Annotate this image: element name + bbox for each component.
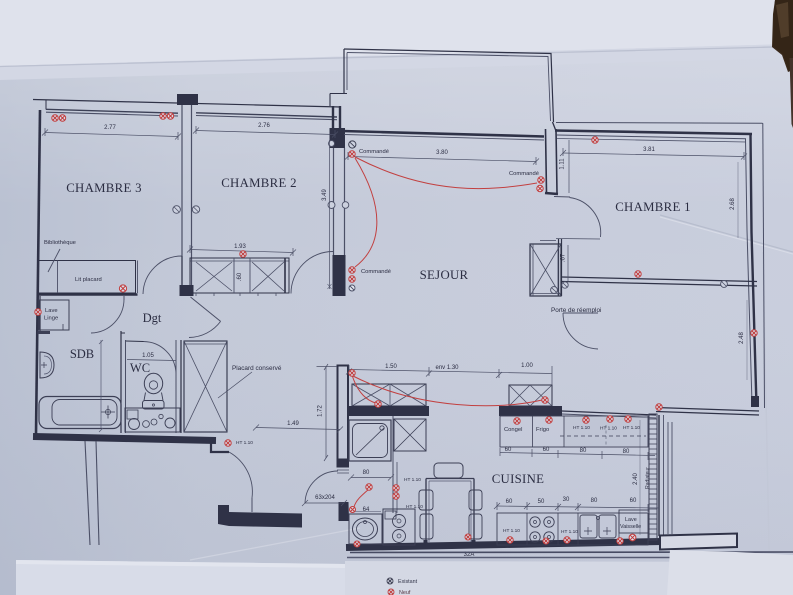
svg-text:HT 1.10: HT 1.10 (623, 425, 640, 431)
svg-text:Commandé: Commandé (509, 171, 539, 177)
svg-text:1.50: 1.50 (385, 364, 397, 370)
svg-text:1.93: 1.93 (234, 244, 246, 250)
svg-text:HT 1.10: HT 1.10 (236, 440, 253, 446)
svg-text:Lave: Lave (45, 308, 58, 314)
svg-text:Dgt: Dgt (143, 311, 162, 325)
svg-text:3.80: 3.80 (436, 150, 448, 156)
svg-text:HT 1.10: HT 1.10 (503, 528, 520, 534)
svg-text:80: 80 (591, 498, 598, 504)
svg-text:60: 60 (543, 447, 550, 453)
svg-text:1.05: 1.05 (142, 353, 154, 359)
svg-text:HT 1.10: HT 1.10 (573, 425, 590, 431)
svg-text:Lave: Lave (625, 517, 637, 523)
svg-text:SDB: SDB (70, 347, 94, 361)
svg-text:CUISINE: CUISINE (492, 472, 545, 486)
svg-text:WC: WC (130, 361, 150, 375)
svg-text:env 1.30: env 1.30 (435, 365, 459, 371)
svg-text:50: 50 (538, 499, 545, 505)
svg-text:3.49: 3.49 (322, 189, 328, 201)
svg-text:Neuf: Neuf (399, 590, 411, 595)
svg-text:60: 60 (505, 447, 512, 453)
svg-text:30: 30 (563, 497, 570, 503)
svg-text:.67: .67 (561, 253, 567, 262)
svg-text:HT 1.10: HT 1.10 (406, 504, 423, 510)
svg-text:Congel: Congel (504, 427, 522, 433)
svg-text:HT 1.10: HT 1.10 (404, 477, 421, 483)
svg-text:Placard conservé: Placard conservé (232, 365, 282, 372)
svg-text:HT 1.10: HT 1.10 (561, 529, 578, 535)
svg-text:Frigo: Frigo (536, 427, 549, 433)
svg-text:Linge: Linge (44, 316, 58, 322)
svg-text:Lit placard: Lit placard (75, 277, 102, 283)
svg-text:80: 80 (580, 448, 587, 454)
svg-text:2.68: 2.68 (730, 198, 736, 210)
svg-text:64: 64 (363, 507, 370, 513)
svg-text:Commandé: Commandé (359, 149, 389, 155)
svg-text:Existant: Existant (398, 579, 418, 585)
svg-text:CHAMBRE 1: CHAMBRE 1 (615, 200, 691, 214)
svg-text:2.48: 2.48 (739, 332, 745, 344)
svg-text:80: 80 (623, 449, 630, 455)
svg-text:2.77: 2.77 (104, 125, 116, 131)
svg-text:60: 60 (506, 499, 513, 505)
svg-text:2.76: 2.76 (258, 123, 270, 129)
svg-text:2.40: 2.40 (633, 473, 639, 485)
svg-text:Porte de réemploi: Porte de réemploi (551, 307, 601, 314)
svg-text:3.81: 3.81 (643, 147, 655, 153)
svg-text:1.72: 1.72 (318, 405, 324, 417)
svg-text:80: 80 (363, 470, 370, 476)
svg-text:CHAMBRE 3: CHAMBRE 3 (66, 181, 142, 195)
svg-text:1.49: 1.49 (287, 421, 299, 427)
svg-text:63x204: 63x204 (315, 495, 335, 501)
svg-text:HT 1.10: HT 1.10 (600, 426, 617, 432)
svg-text:1.00: 1.00 (521, 363, 533, 369)
svg-text:Commandé: Commandé (361, 269, 391, 275)
svg-text:60: 60 (630, 498, 637, 504)
svg-text:Vaisselle: Vaisselle (620, 524, 641, 530)
svg-text:CHAMBRE 2: CHAMBRE 2 (221, 176, 297, 190)
svg-text:Radiateur: Radiateur (645, 467, 651, 489)
svg-text:SEJOUR: SEJOUR (420, 268, 469, 282)
svg-text:1.11: 1.11 (560, 158, 566, 170)
svg-text:Bibliothèque: Bibliothèque (44, 240, 76, 246)
svg-text:.60: .60 (237, 272, 243, 281)
